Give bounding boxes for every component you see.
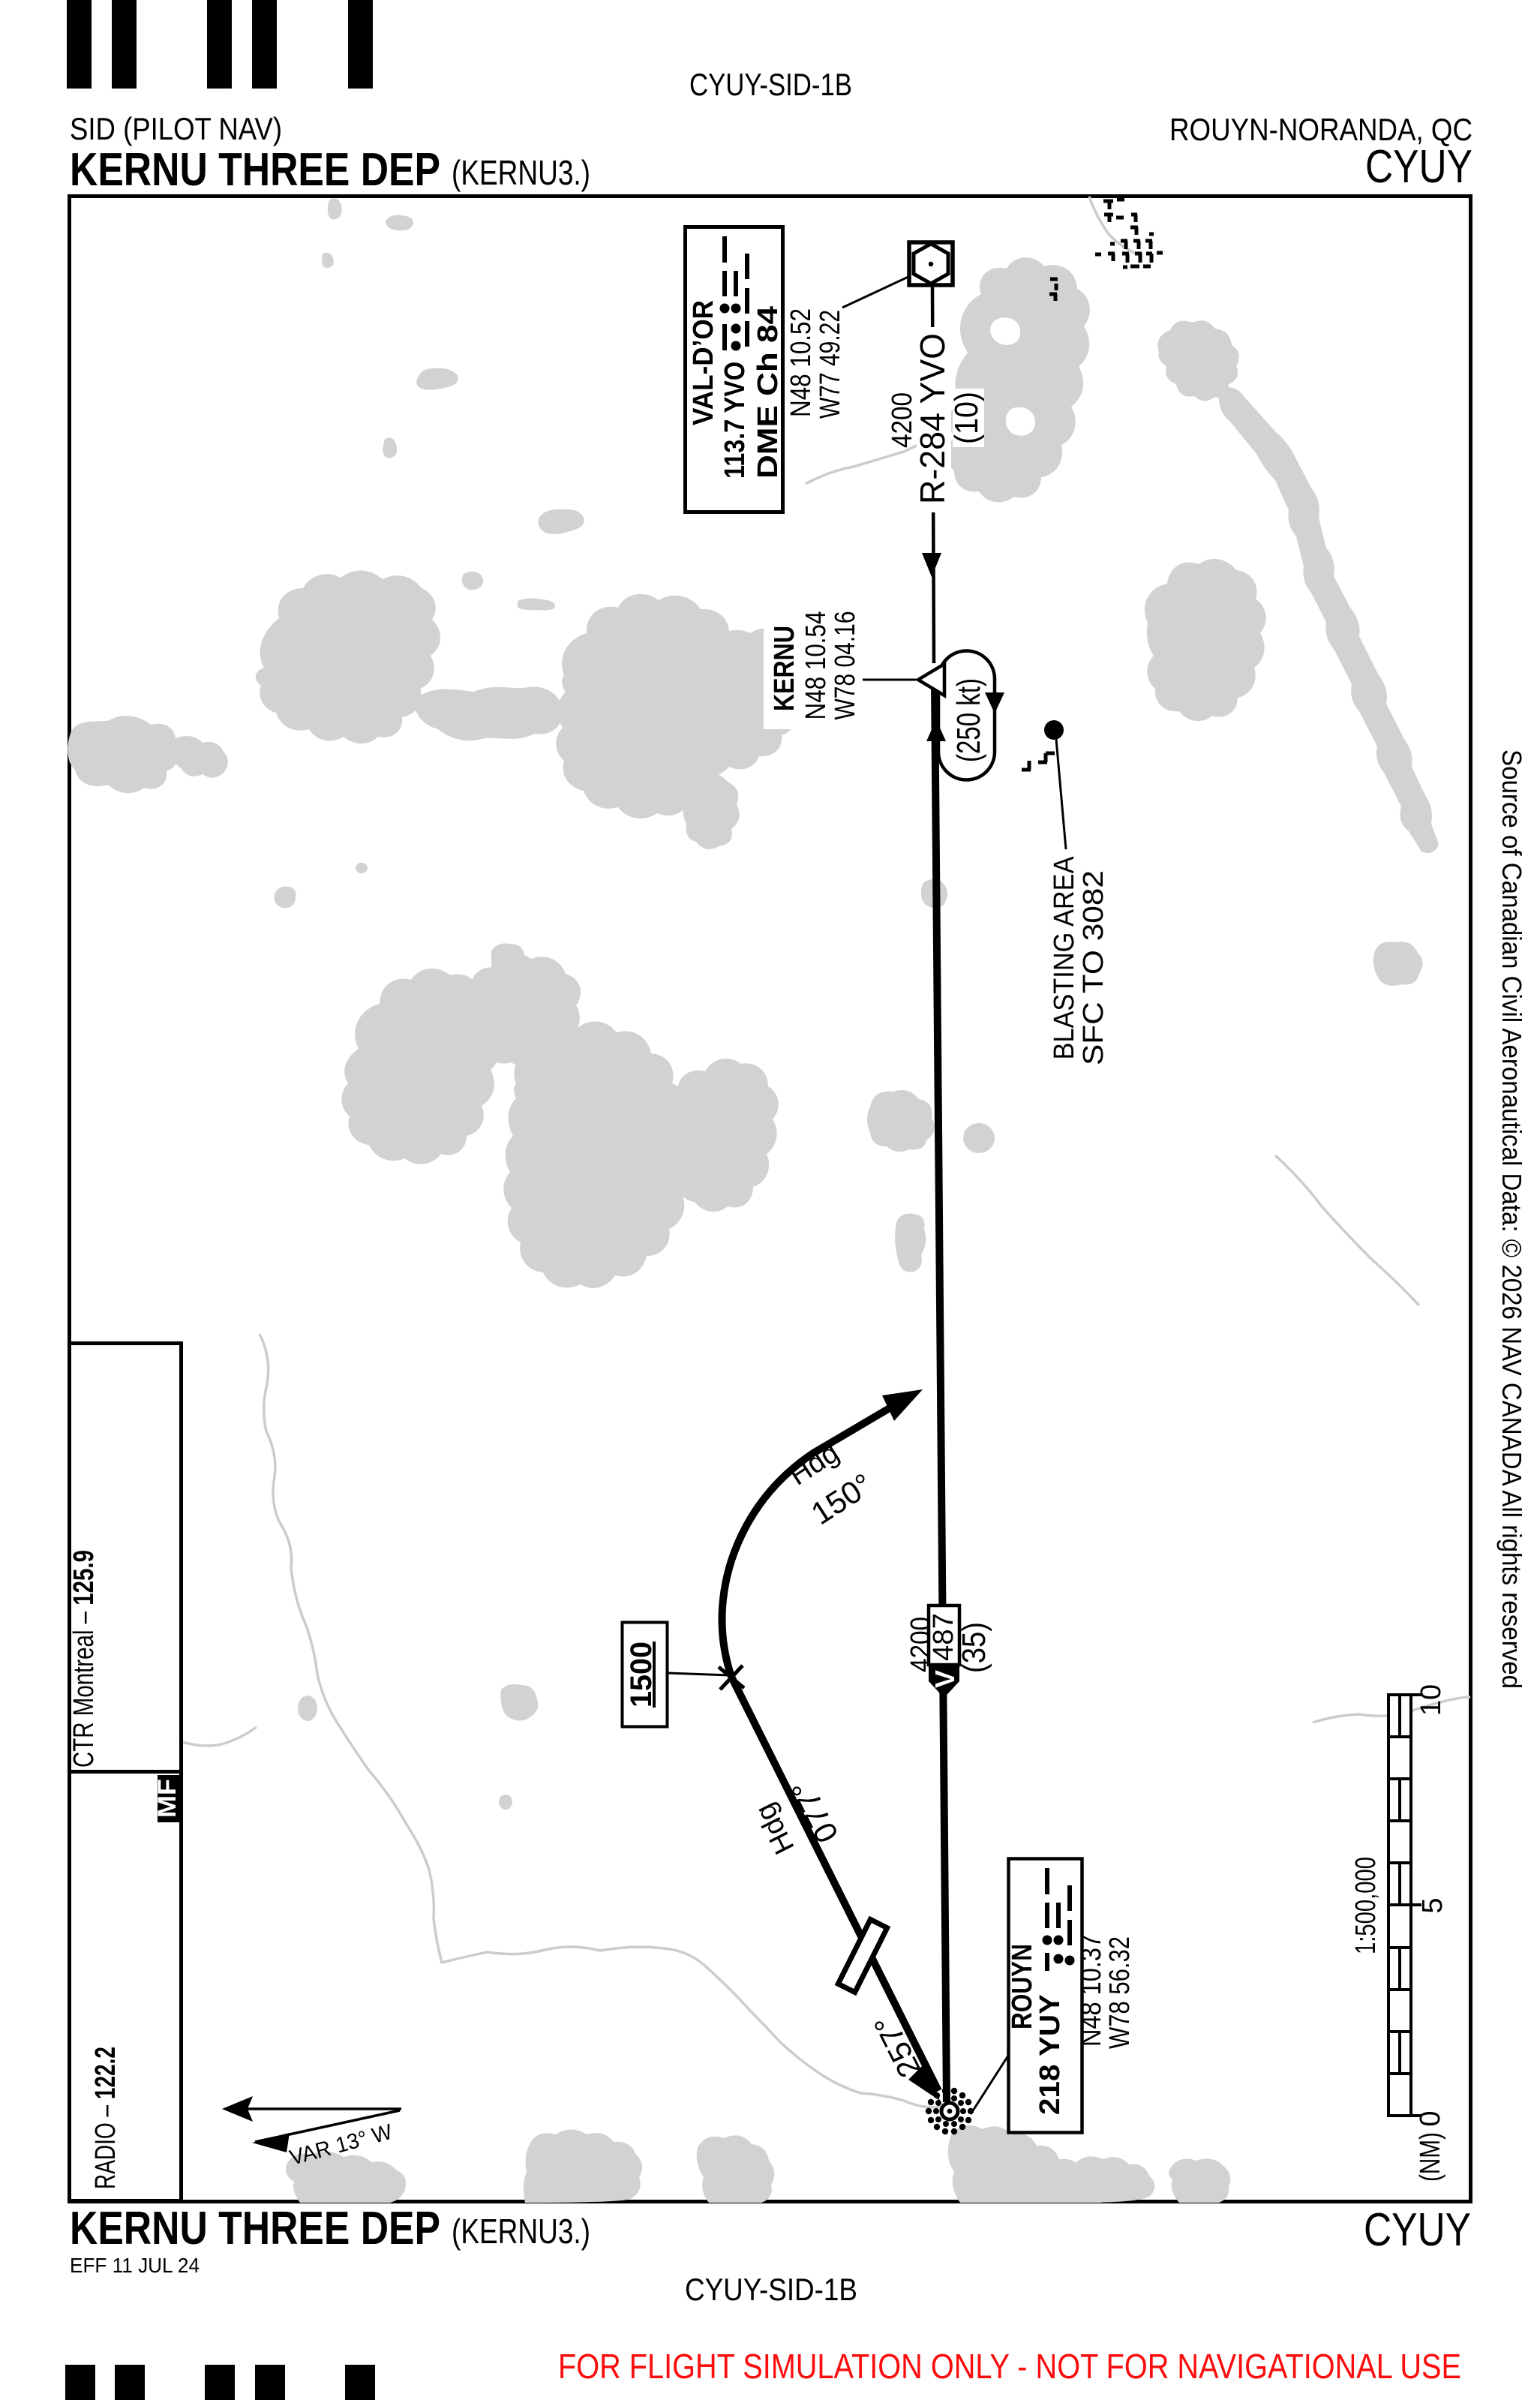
svg-text:FOR FLIGHT SIMULATION ONLY - N: FOR FLIGHT SIMULATION ONLY - NOT FOR NAV… [558, 2347, 1461, 2386]
svg-text:N48 10.37: N48 10.37 [1076, 1934, 1107, 2047]
svg-text:(10): (10) [948, 392, 985, 444]
svg-text:CTR Montreal – 125.9: CTR Montreal – 125.9 [68, 1550, 100, 1768]
svg-text:1:500,000: 1:500,000 [1350, 1857, 1382, 1954]
svg-text:487: 487 [928, 1613, 959, 1661]
svg-text:CYUY: CYUY [1364, 2204, 1471, 2256]
svg-text:ROUYN: ROUYN [1007, 1944, 1038, 2029]
svg-text:(KERNU3.): (KERNU3.) [452, 153, 590, 192]
svg-text:KERNU: KERNU [769, 626, 800, 711]
svg-text:CYUY-SID-1B: CYUY-SID-1B [685, 2272, 857, 2307]
svg-text:BLASTING AREA: BLASTING AREA [1049, 856, 1080, 1060]
svg-text:CYUY: CYUY [1365, 141, 1472, 193]
svg-text:N48 10.52: N48 10.52 [785, 308, 817, 417]
svg-text:DME Ch 84: DME Ch 84 [752, 306, 784, 479]
svg-text:5: 5 [1417, 1897, 1448, 1913]
svg-text:W78 04.16: W78 04.16 [830, 611, 861, 720]
svg-text:RADIO – 122.2: RADIO – 122.2 [90, 2047, 122, 2189]
svg-text:W78 56.32: W78 56.32 [1104, 1936, 1136, 2049]
svg-text:113.7 YVO: 113.7 YVO [719, 362, 751, 479]
svg-text:0: 0 [1415, 2110, 1446, 2126]
svg-text:VAL-D’OR: VAL-D’OR [688, 300, 719, 425]
svg-text:(35): (35) [956, 1622, 992, 1673]
svg-text:10: 10 [1415, 1684, 1447, 1716]
svg-text:(NM): (NM) [1415, 2132, 1446, 2182]
svg-text:(KERNU3.): (KERNU3.) [452, 2212, 590, 2251]
svg-text:218 YUY: 218 YUY [1034, 1994, 1066, 2115]
svg-text:CYUY-SID-1B: CYUY-SID-1B [689, 67, 852, 102]
svg-text:4200: 4200 [887, 392, 918, 448]
svg-text:KERNU THREE DEP: KERNU THREE DEP [70, 2203, 440, 2254]
svg-text:W77 49.22: W77 49.22 [815, 310, 846, 419]
svg-text:MF: MF [153, 1779, 182, 1818]
svg-text:R-284 YVO: R-284 YVO [913, 333, 952, 504]
svg-text:KERNU THREE DEP: KERNU THREE DEP [70, 144, 440, 196]
svg-text:(250 kt): (250 kt) [950, 678, 987, 762]
svg-text:SFC TO 3082: SFC TO 3082 [1078, 870, 1109, 1065]
svg-text:N48 10.54: N48 10.54 [800, 611, 832, 720]
svg-text:SID (PILOT NAV): SID (PILOT NAV) [70, 111, 282, 146]
svg-text:Source of Canadian Civil Aeron: Source of Canadian Civil Aeronautical Da… [1496, 749, 1527, 1689]
svg-text:EFF 11 JUL 24: EFF 11 JUL 24 [70, 2254, 200, 2277]
svg-text:1500: 1500 [625, 1642, 658, 1708]
